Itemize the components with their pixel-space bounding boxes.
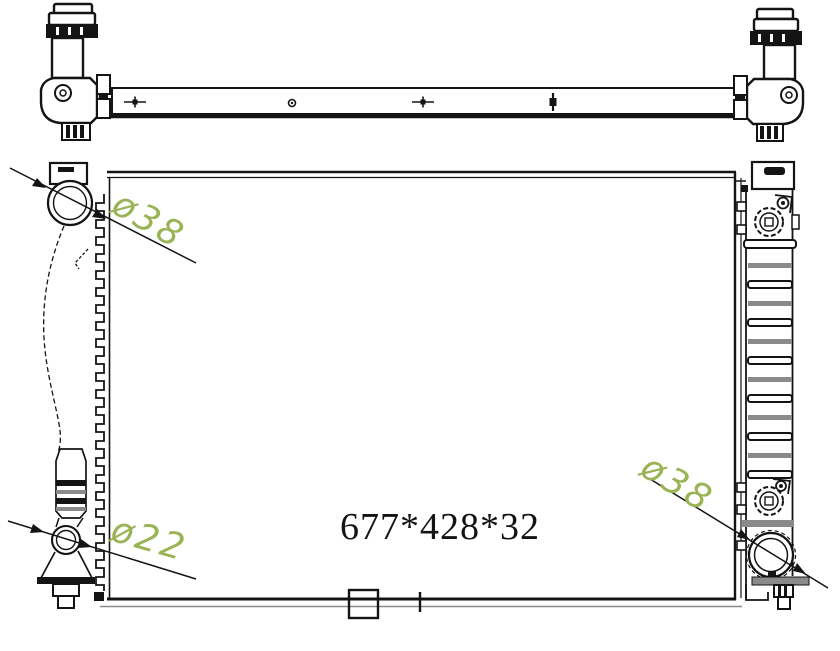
radiator-core	[94, 172, 742, 618]
tank-rib	[748, 377, 792, 382]
arrowhead	[793, 563, 806, 574]
tank-rib	[748, 339, 792, 344]
bottom-bracket	[746, 571, 809, 609]
tank-rib	[748, 281, 792, 288]
arrowhead	[30, 524, 44, 533]
right-end-fitting	[734, 9, 803, 141]
knurled-cap-band	[750, 31, 802, 45]
knurled-cap-band	[46, 24, 98, 38]
tank-rib	[748, 263, 792, 268]
tank-rib	[748, 357, 792, 364]
drain-fitting	[37, 551, 95, 608]
right-tank	[735, 162, 809, 609]
tank-rib	[748, 471, 792, 478]
left-filler-neck	[41, 4, 110, 140]
left-tank	[37, 163, 95, 608]
drawing-canvas: ø38 ø22 ø38 677*428*32	[0, 0, 840, 651]
tank-contour-dashed	[44, 226, 64, 452]
tank-rib	[748, 301, 792, 306]
top-view-assembly	[41, 4, 803, 141]
tank-rib	[748, 319, 792, 326]
lower-threaded-port	[755, 479, 790, 515]
inlet-port-38	[48, 181, 92, 225]
top-bracket	[752, 162, 794, 189]
arrowhead	[737, 529, 750, 540]
tank-rib	[748, 415, 792, 420]
tank-rib	[748, 453, 792, 458]
tank-rib	[748, 395, 792, 402]
overall-dimension-text: 677*428*32	[328, 508, 552, 546]
bottom-mount-tab	[349, 590, 378, 618]
sawtooth-edge	[96, 194, 104, 591]
tank-ribs	[748, 263, 792, 478]
upper-threaded-port	[755, 195, 792, 236]
tank-rib	[748, 433, 792, 440]
